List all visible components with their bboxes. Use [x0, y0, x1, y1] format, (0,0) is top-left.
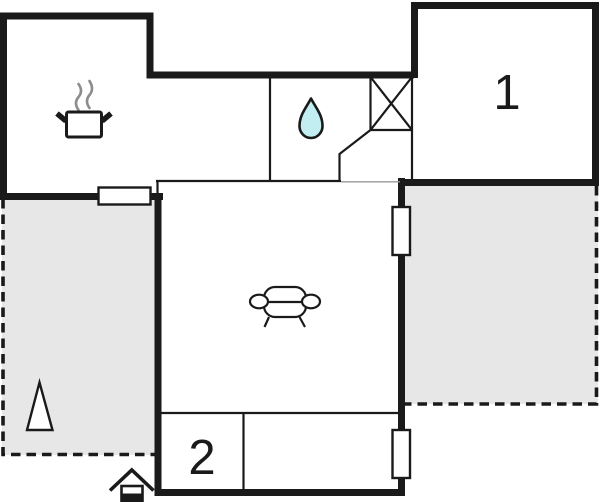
- interior-walls: [156, 75, 412, 492]
- wall-kitchen-top: [4, 16, 415, 200]
- wall-bathroom-angled: [340, 130, 371, 181]
- pot-body: [67, 112, 102, 137]
- entrance-house-icon: [110, 470, 154, 502]
- window-living-upper: [393, 207, 411, 255]
- terrace-right: [404, 186, 599, 404]
- water-drop-shape: [300, 99, 323, 139]
- floor-plan: 1 2: [0, 0, 600, 502]
- sofa-icon: [250, 287, 320, 327]
- water-drop-icon: [300, 99, 323, 139]
- crossed-box-icon: [371, 77, 413, 130]
- steam-icon: [87, 81, 92, 108]
- window-kitchen: [99, 188, 151, 205]
- steam-icon: [76, 84, 81, 110]
- terrace-right-area: [404, 186, 598, 404]
- window-hall-lower: [393, 430, 411, 478]
- terrace-left: [2, 199, 157, 455]
- sofa-armrest-right: [302, 295, 320, 309]
- room-2-label: 2: [188, 431, 215, 485]
- floor-plan-canvas: 1 2: [0, 0, 600, 502]
- entrance-house-base: [123, 494, 142, 502]
- sofa-legs: [265, 317, 306, 327]
- terrace-left-area: [2, 199, 155, 455]
- sofa-armrest-left: [250, 295, 268, 309]
- room-1-label: 1: [493, 66, 520, 120]
- cooking-pot-icon: [57, 81, 111, 137]
